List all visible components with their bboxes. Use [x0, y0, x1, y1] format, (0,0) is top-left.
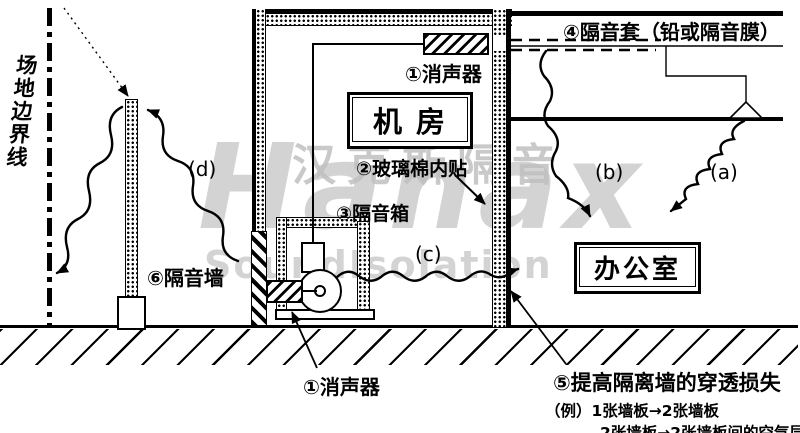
machine-room-box: 机 房 [347, 92, 473, 149]
silencer-bottom-label: ①消声器 [303, 371, 380, 400]
site-boundary-line [47, 8, 52, 327]
site-boundary-label: 场地边界线 [0, 54, 42, 169]
sound-wall-label: ⑥隔音墙 [147, 262, 224, 291]
glass-wool-lining-duct [312, 43, 314, 244]
ceiling-diffuser [730, 102, 762, 118]
partition-note: ⑤提高隔离墙的穿透损失 （例）1张墙板→2张墙板 2张墙板→2张墙板间的空气层 [545, 367, 800, 433]
path-c-label: (c) [415, 242, 442, 266]
glass-wool-lining-top [312, 43, 425, 45]
partition-wall [492, 9, 511, 327]
silencer-top-box [423, 33, 489, 55]
office-box: 办公室 [574, 242, 701, 294]
noise-wave-d-left [57, 107, 122, 273]
machine-room-left-wall-louver [251, 231, 267, 326]
sleeve-label: ④隔音套（铅或隔音膜） [563, 16, 780, 45]
sound-box-label: ③隔音箱 [336, 199, 409, 226]
machine-room-left-wall [252, 9, 266, 233]
machine-room-ceiling [252, 9, 512, 26]
sight-line [64, 8, 128, 96]
path-d-label: (d) [188, 157, 216, 181]
duct-step [666, 46, 746, 103]
outdoor-sound-wall [125, 99, 138, 300]
office-label: 办公室 [579, 247, 696, 287]
fan-inlet-line [301, 290, 317, 292]
partition-note-title: ⑤提高隔离墙的穿透损失 [553, 367, 800, 397]
machine-room-label: 机 房 [352, 97, 468, 142]
silencer-top-label: ①消声器 [405, 58, 482, 87]
path-b-label: (b) [595, 160, 623, 184]
ground-hatching [0, 329, 798, 365]
enclosure-right-wall [357, 221, 370, 312]
partition-note-example-1: （例）1张墙板→2张墙板 [545, 399, 800, 421]
office-ceiling-line [511, 117, 783, 121]
outdoor-wall-pedestal [117, 296, 146, 330]
partition-note-example-2: 2张墙板→2张墙板间的空气层 [600, 421, 800, 433]
silencer-bottom-box [266, 280, 303, 303]
partition-wall-duct-gap [494, 37, 506, 51]
path-a-label: (a) [710, 160, 738, 184]
noise-control-diagram: Hanax 汉克斯隔音 SoundIsolation 场地边界线 [0, 0, 800, 433]
glass-wool-label: ②玻璃棉内贴 [356, 154, 467, 181]
